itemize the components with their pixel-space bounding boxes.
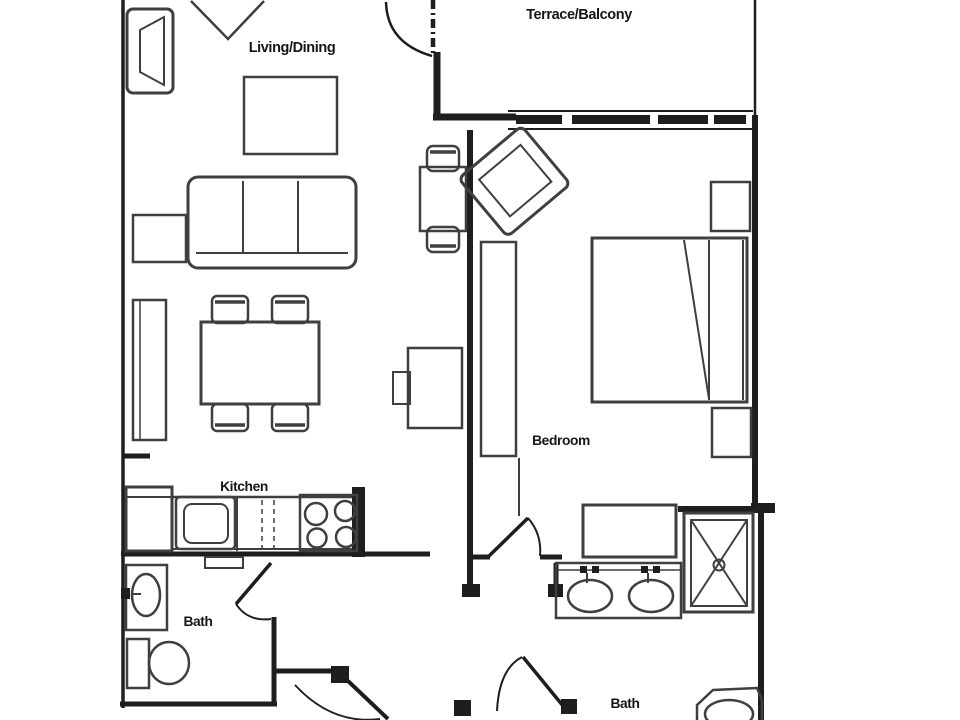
dishwasher xyxy=(262,500,274,548)
dining-chair xyxy=(272,404,308,431)
nightstand xyxy=(712,408,751,457)
wardrobe xyxy=(481,242,519,516)
room-label-bedroom: Bedroom xyxy=(532,433,590,448)
bath-second-fixtures xyxy=(556,513,762,720)
bath2-door-leaf xyxy=(523,657,568,712)
closet-door-arc xyxy=(295,685,380,720)
bedroom-furniture xyxy=(459,126,751,557)
bistro-table xyxy=(420,167,466,231)
dresser xyxy=(583,505,676,557)
bath-main-fixtures xyxy=(121,557,243,688)
bedroom-door-arc xyxy=(528,518,540,556)
bath2-jamb-left xyxy=(454,700,471,716)
dining-chair xyxy=(212,296,248,323)
walls xyxy=(120,0,775,720)
bath2-door-arc xyxy=(497,657,522,711)
dining-table xyxy=(201,322,319,404)
side-table xyxy=(133,215,186,262)
nightstand xyxy=(711,182,750,231)
floor-plan: Terrace/Balcony Living/Dining Bedroom Ki… xyxy=(0,0,960,720)
living-dining-furniture xyxy=(127,1,466,440)
floor-plan-svg: Terrace/Balcony Living/Dining Bedroom Ki… xyxy=(0,0,960,720)
bath-main-door-leaf xyxy=(236,563,271,604)
desk xyxy=(408,348,462,428)
kitchen-end-wall xyxy=(352,487,365,557)
room-label-bath-second: Bath xyxy=(610,696,639,711)
armchair xyxy=(127,9,173,93)
door-threshold xyxy=(205,557,243,568)
window-pane xyxy=(658,115,708,124)
room-label-bath-main: Bath xyxy=(183,614,212,629)
window-pane xyxy=(516,115,562,124)
bath-main-door-arc xyxy=(236,604,271,619)
corner-unit xyxy=(191,1,264,39)
room-label-terrace-balcony: Terrace/Balcony xyxy=(526,7,632,23)
dining-chair xyxy=(212,404,248,431)
coffee-table xyxy=(244,77,337,154)
room-label-living-dining: Living/Dining xyxy=(249,40,336,56)
window-band xyxy=(508,111,753,129)
window-pane xyxy=(572,115,650,124)
double-vanity xyxy=(556,563,681,618)
closet-door-frame xyxy=(331,666,349,683)
bedroom-door-leaf xyxy=(489,518,528,556)
toilet xyxy=(127,639,189,688)
closet-door-leaf xyxy=(348,681,388,719)
entry-door-arc xyxy=(386,2,432,56)
toilet xyxy=(697,688,762,720)
shower xyxy=(684,513,753,612)
doors xyxy=(236,0,568,720)
room-label-kitchen: Kitchen xyxy=(220,479,268,494)
stove xyxy=(300,495,357,551)
vanity-sink xyxy=(121,565,167,630)
window-pane xyxy=(714,115,746,124)
lounge-chair xyxy=(459,126,571,237)
sofa xyxy=(188,177,356,268)
kitchen-sink xyxy=(176,497,235,549)
bookshelf xyxy=(133,300,166,440)
dining-chair xyxy=(272,296,308,323)
double-bed xyxy=(592,238,747,402)
hall-jamb-left xyxy=(462,584,480,597)
kitchen-fixtures xyxy=(126,487,357,551)
refrigerator xyxy=(126,487,172,551)
